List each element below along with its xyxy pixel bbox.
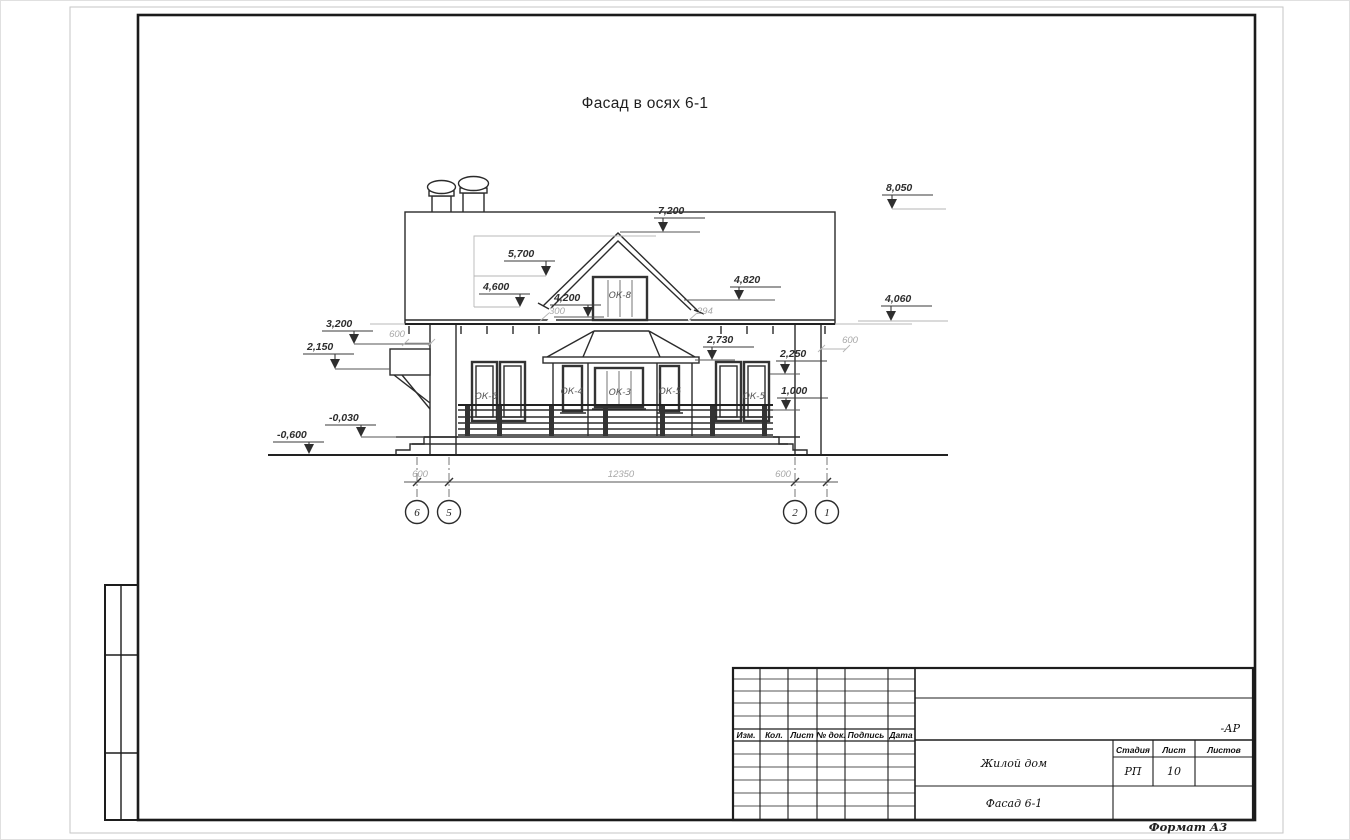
dim-label: 600 <box>389 329 406 340</box>
window-label: ОК-4 <box>561 387 584 397</box>
dim-label: 300 <box>549 306 566 317</box>
window-label: ОК-3 <box>609 388 632 398</box>
stage-header: Стадия <box>1116 745 1150 755</box>
dim-label: -0,600 <box>277 429 307 441</box>
dim-label: 2,730 <box>706 334 733 346</box>
dim-label: 2,150 <box>306 341 333 353</box>
sheet-number: 10 <box>1167 765 1181 778</box>
window-label: ОК-5 <box>659 387 682 397</box>
dim-label: 12350 <box>608 469 635 480</box>
column-header: Изм. <box>737 730 756 740</box>
project-name: Жилой дом <box>980 757 1047 770</box>
dim-label: 600 <box>842 335 859 346</box>
window-label: ОК-6 <box>475 392 498 402</box>
dim-label: 2,250 <box>779 348 806 360</box>
dim-label: 8,050 <box>886 182 912 194</box>
drawing-canvas: Фасад в осях 6-1 <box>0 0 1350 840</box>
dim-label: 4,200 <box>553 292 580 304</box>
dim-label: 7,200 <box>658 205 684 217</box>
left-wall-column <box>430 325 456 455</box>
dormer-window-ok8: ОК-8 <box>593 277 647 320</box>
dim-label: 4,820 <box>733 274 760 286</box>
chimney-2 <box>459 177 489 214</box>
column-header: Дата <box>888 730 912 740</box>
dim-label: 4,060 <box>884 293 911 305</box>
dim-label: 600 <box>775 469 792 480</box>
axis-label: 5 <box>446 507 452 519</box>
column-header: Лист <box>789 730 814 740</box>
dim-label: 600 <box>412 469 429 480</box>
drawing-sheet: Фасад в осях 6-1 <box>0 0 1350 840</box>
dim-label: 3,200 <box>326 318 352 330</box>
dim-label: 4,600 <box>482 281 509 293</box>
dim-label: -0,030 <box>329 412 359 424</box>
column-header: № док. <box>816 730 845 740</box>
stage-value: РП <box>1124 765 1142 778</box>
sheet-title: Фасад 6-1 <box>986 797 1043 810</box>
sheet-header: Лист <box>1161 745 1186 755</box>
sheets-header: Листов <box>1206 745 1241 755</box>
window-label: ОК-8 <box>609 291 632 301</box>
chimney-1 <box>428 181 456 214</box>
column-header: Подпись <box>848 730 885 740</box>
format-label: Формат А3 <box>1149 820 1228 834</box>
dim-label: 294 <box>696 306 713 317</box>
dim-label: 1,000 <box>781 385 807 397</box>
window-label: ОК-5 <box>743 392 766 402</box>
column-header: Кол. <box>765 730 783 740</box>
document-code: -АР <box>1221 722 1241 735</box>
axis-label: 6 <box>414 507 420 519</box>
dim-label: 5,700 <box>508 248 534 260</box>
page-title: Фасад в осях 6-1 <box>582 95 709 112</box>
window-ok3: ОК-3 <box>592 368 646 409</box>
axis-label: 2 <box>792 507 798 519</box>
axis-label: 1 <box>824 507 830 519</box>
